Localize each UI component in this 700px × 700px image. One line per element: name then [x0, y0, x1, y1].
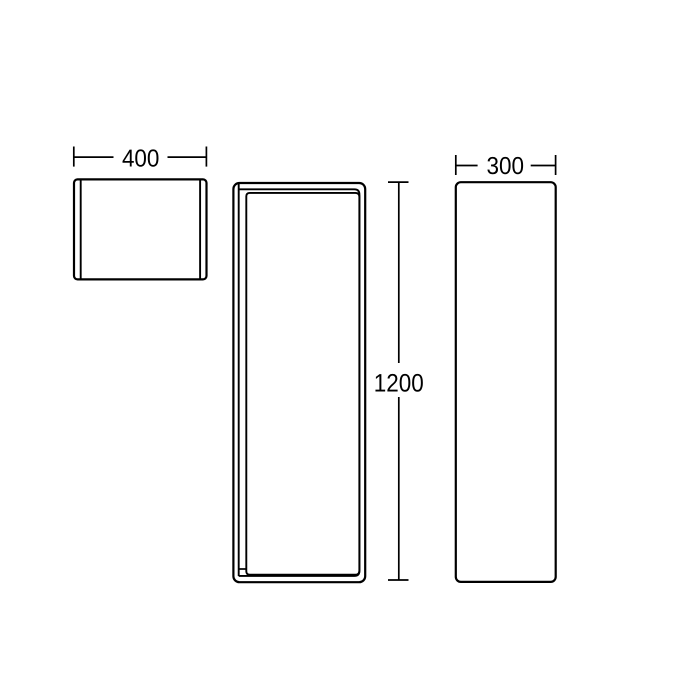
svg-text:300: 300 [487, 153, 525, 180]
svg-text:1200: 1200 [374, 370, 424, 398]
svg-text:400: 400 [122, 145, 160, 172]
